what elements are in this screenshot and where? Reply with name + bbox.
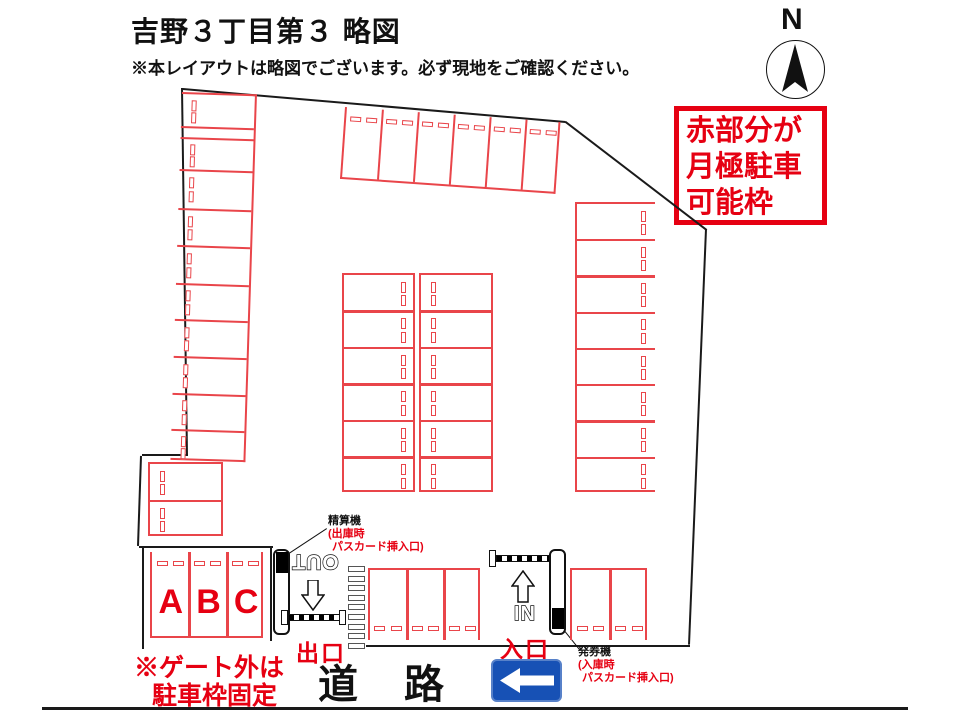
stall-center-dash [183, 364, 188, 375]
parking-block-west-pair [148, 462, 223, 536]
stall-center-dash [181, 436, 186, 447]
parking-block-center-right [419, 273, 493, 492]
lot-boundary-line [139, 546, 273, 548]
stall-divider [344, 383, 413, 385]
road-label-1: 道 [318, 652, 358, 710]
stall-center-dash [184, 341, 189, 352]
stall-center-dash [431, 332, 436, 343]
stall-center-dash [248, 561, 259, 566]
exit-gate-hinge [281, 610, 288, 625]
stall-center-dash [401, 282, 406, 293]
stall-center-dash [401, 441, 406, 452]
stall-center-dash [386, 119, 397, 125]
stall-center-dash [530, 129, 541, 135]
stall-divider [485, 117, 492, 187]
stall-center-dash [422, 121, 433, 127]
pay-machine-icon [276, 552, 288, 573]
stall-center-dash [182, 401, 187, 412]
stall-center-dash [431, 355, 436, 366]
stall-center-dash [431, 405, 436, 416]
stall-divider [344, 347, 413, 349]
stall-center-dash [641, 428, 646, 439]
parking-lot-map: 吉野３丁目第３ 略図 ※本レイアウトは略図でございます。必ず現地をご確認ください… [0, 0, 960, 718]
stall-divider [421, 383, 491, 385]
stall-center-dash [641, 296, 646, 307]
stall-center-dash [641, 441, 646, 452]
stall-divider [443, 570, 445, 640]
stall-divider [421, 456, 491, 458]
stall-center-dash [431, 478, 436, 489]
stall-center-dash [402, 120, 413, 126]
stall-center-dash [401, 318, 406, 329]
crosswalk-bar [348, 585, 365, 591]
stall-center-dash [641, 478, 646, 489]
stall-divider [181, 137, 254, 142]
stall-center-dash [180, 448, 185, 459]
parking-block-abc: ABC [150, 552, 263, 638]
lot-boundary-line [688, 229, 707, 645]
lot-graphics-layer: ABC [0, 0, 960, 718]
stall-center-dash [187, 253, 192, 264]
stall-divider [577, 312, 655, 314]
stall-center-dash [593, 626, 604, 631]
ticket-machine-sub2: パスカード挿入口) [578, 672, 674, 685]
stall-center-dash [401, 464, 406, 475]
stall-center-dash [350, 116, 361, 122]
stall-center-dash [160, 471, 165, 482]
stall-center-dash [232, 561, 243, 566]
stall-center-dash [641, 247, 646, 258]
stall-center-dash [401, 405, 406, 416]
stall-letter: C [227, 583, 265, 622]
stall-center-dash [194, 561, 205, 566]
stall-center-dash [431, 318, 436, 329]
stall-center-dash [474, 125, 485, 131]
stall-divider [180, 169, 253, 174]
lot-boundary-line [137, 456, 142, 546]
stall-divider [449, 115, 456, 185]
stall-divider [177, 245, 250, 250]
crosswalk-bar [348, 576, 365, 582]
parking-block-center-left [342, 273, 415, 492]
stall-divider [577, 275, 655, 277]
stall-divider [520, 120, 527, 190]
stall-center-dash [401, 428, 406, 439]
stall-divider [344, 420, 413, 422]
stall-center-dash [401, 391, 406, 402]
road-label-2: 路 [404, 652, 444, 710]
stall-center-dash [509, 128, 520, 134]
crosswalk-bar [348, 604, 365, 610]
stall-divider [171, 429, 244, 434]
stall-center-dash [401, 478, 406, 489]
stall-center-dash [641, 260, 646, 271]
entry-gate-bar [496, 555, 551, 562]
stall-divider [577, 457, 655, 459]
pay-machine-label: 精算機 (出庫時 パスカード挿入口) [328, 515, 424, 554]
stall-divider [172, 393, 245, 398]
stall-center-dash [458, 124, 469, 130]
stall-divider [175, 319, 248, 324]
stall-center-dash [183, 378, 188, 389]
stall-center-dash [615, 626, 626, 631]
stall-center-dash [185, 291, 190, 302]
stall-center-dash [431, 391, 436, 402]
stall-divider [150, 500, 221, 502]
stall-center-dash [641, 464, 646, 475]
stall-letter: B [190, 583, 228, 622]
stall-center-dash [187, 230, 192, 241]
stall-center-dash [160, 508, 165, 519]
pay-machine-sub1: (出庫時 [328, 528, 424, 541]
stall-center-dash [431, 464, 436, 475]
stall-center-dash [641, 211, 646, 222]
entry-gate-endcap [489, 550, 496, 567]
stall-center-dash [401, 332, 406, 343]
stall-center-dash [428, 626, 439, 631]
left-arrow-icon [491, 659, 562, 702]
stall-letter: A [152, 583, 190, 622]
stall-center-dash [401, 368, 406, 379]
stall-divider [176, 283, 249, 288]
stall-center-dash [173, 561, 184, 566]
stall-center-dash [160, 484, 165, 495]
exit-gate-endcap [339, 610, 346, 625]
parking-block-top-row [340, 107, 560, 194]
stall-center-dash [641, 392, 646, 403]
stall-center-dash [189, 177, 194, 188]
stall-center-dash [641, 356, 646, 367]
stall-center-dash [641, 405, 646, 416]
stall-divider [344, 456, 413, 458]
stall-center-dash [374, 626, 385, 631]
crosswalk-bar [348, 643, 365, 649]
stall-divider [421, 310, 491, 312]
stall-center-dash [188, 216, 193, 227]
crosswalk-bar [348, 614, 365, 620]
stall-divider [609, 570, 611, 640]
stall-center-dash [641, 333, 646, 344]
exit-gate-bar [288, 614, 340, 621]
stall-center-dash [182, 414, 187, 425]
stall-divider [181, 126, 254, 131]
exit-arrow-down-icon [301, 580, 325, 611]
lot-boundary-line [270, 546, 272, 641]
stall-divider [377, 110, 384, 180]
stall-divider [577, 239, 655, 241]
pay-machine-name: 精算機 [328, 515, 424, 528]
stall-center-dash [431, 368, 436, 379]
parking-block-left-column [170, 92, 257, 462]
stall-center-dash [190, 156, 195, 167]
one-way-sign [491, 659, 562, 702]
stall-center-dash [366, 117, 377, 123]
stall-center-dash [191, 112, 196, 123]
stall-center-dash [431, 295, 436, 306]
stall-divider [344, 310, 413, 312]
stall-center-dash [632, 626, 643, 631]
in-label-wrapper: IN [505, 601, 545, 625]
stall-center-dash [401, 295, 406, 306]
stall-divider [174, 356, 247, 361]
stall-divider [577, 384, 655, 386]
crosswalk-bar [348, 566, 365, 572]
stall-center-dash [185, 304, 190, 315]
stall-divider [178, 208, 251, 213]
parking-block-entry-gate-stalls [570, 568, 647, 640]
stall-center-dash [184, 327, 189, 338]
stall-center-dash [641, 369, 646, 380]
stall-center-dash [494, 126, 505, 132]
ticket-machine-sub1: (入庫時 [578, 659, 674, 672]
stall-center-dash [449, 626, 460, 631]
stall-divider [421, 420, 491, 422]
stall-center-dash [160, 521, 165, 532]
stall-divider [421, 347, 491, 349]
gate-note-line2: 駐車枠固定 [152, 676, 277, 712]
stall-divider [413, 112, 420, 182]
stall-center-dash [431, 282, 436, 293]
stall-center-dash [186, 267, 191, 278]
stall-center-dash [438, 123, 449, 129]
stall-center-dash [641, 283, 646, 294]
stall-divider [577, 348, 655, 350]
in-label: IN [514, 603, 536, 625]
stall-center-dash [210, 561, 221, 566]
ticket-machine-name: 発券機 [578, 646, 674, 659]
parking-block-right-column [575, 202, 655, 492]
ticket-machine-icon [552, 608, 564, 629]
stall-center-dash [189, 192, 194, 203]
lot-boundary-line [142, 546, 144, 649]
ticket-machine-label: 発券機 (入庫時 パスカード挿入口) [578, 646, 674, 685]
stall-center-dash [190, 144, 195, 155]
stall-center-dash [191, 100, 196, 111]
crosswalk-bar [348, 624, 365, 630]
stall-divider [577, 420, 655, 422]
crosswalk-bar [348, 595, 365, 601]
stall-center-dash [641, 319, 646, 330]
crosswalk-bar [348, 633, 365, 639]
parking-block-exit-gate-stalls [368, 568, 480, 640]
stall-center-dash [641, 224, 646, 235]
stall-center-dash [545, 130, 556, 136]
stall-center-dash [157, 561, 168, 566]
stall-center-dash [431, 441, 436, 452]
stall-center-dash [577, 626, 588, 631]
pay-machine-sub2: パスカード挿入口) [328, 541, 424, 554]
stall-center-dash [412, 626, 423, 631]
stall-center-dash [465, 626, 476, 631]
stall-center-dash [401, 355, 406, 366]
entry-arrow-up-icon [511, 570, 535, 603]
stall-divider [406, 570, 408, 640]
stall-center-dash [431, 428, 436, 439]
stall-center-dash [391, 626, 402, 631]
